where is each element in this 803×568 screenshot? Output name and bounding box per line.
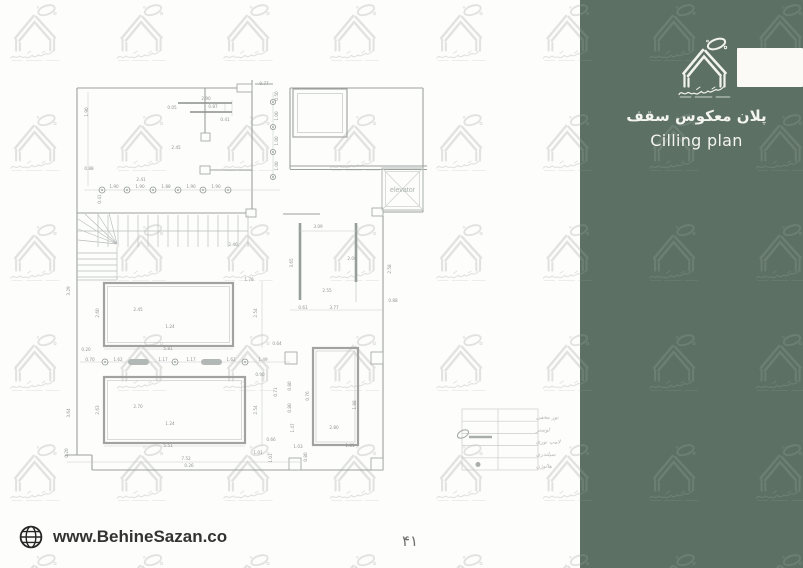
watermark-house-logo xyxy=(756,223,803,280)
dimension-label: 2.58 xyxy=(387,264,392,274)
dimension-label: 5.51 xyxy=(163,443,173,448)
dimension-label: 2.54 xyxy=(253,308,258,318)
dimension-label: 0.77 xyxy=(259,81,269,86)
dimension-label: 1.88 xyxy=(352,400,357,410)
dimension-label: 2.46 xyxy=(228,242,238,247)
watermark-house-logo xyxy=(580,553,592,568)
dimension-label: 1.62 xyxy=(113,357,123,362)
dimension-label: 1.49 xyxy=(258,357,268,362)
dimension-label: 1.47 xyxy=(290,423,295,433)
header-tab-marker xyxy=(737,48,803,87)
watermark-house-logo xyxy=(650,223,698,280)
dimension-label: 1.90 xyxy=(211,184,221,189)
legend-row-label: نور مخفی xyxy=(536,415,559,421)
watermark-house-logo xyxy=(580,333,592,390)
dimension-label: 0.88 xyxy=(388,298,398,303)
brand-house-logo-icon xyxy=(676,28,736,107)
watermark-house-logo xyxy=(580,3,592,60)
dimension-label: 1.01 xyxy=(268,453,273,463)
halogen-dot-icon xyxy=(476,462,481,467)
watermark-house-logo xyxy=(756,333,803,390)
dimension-label: 2.55 xyxy=(322,288,332,293)
dimension-label: 1.01 xyxy=(253,450,263,455)
dimension-label: 1.90 xyxy=(186,184,196,189)
dimension-label: 1.81 xyxy=(345,443,355,448)
dimension-label: 2.60 xyxy=(95,308,100,318)
ceiling-lights xyxy=(99,99,276,365)
dimension-label: 3.65 xyxy=(289,258,294,268)
legend-row-label: هالوژن xyxy=(536,463,552,470)
website-url[interactable]: www.BehineSazan.co xyxy=(53,527,227,547)
dimension-label: 0.90 xyxy=(255,372,265,377)
legend-row-label: لامپ نوری xyxy=(536,439,561,446)
ceiling-panel-bottom xyxy=(104,377,245,443)
dimension-label: 3.64 xyxy=(66,408,71,418)
legend-labels: نور مخفیلوسترلامپ نوریسیلندریهالوژن xyxy=(535,415,561,470)
legend-table: نور مخفیلوسترلامپ نوریسیلندریهالوژن xyxy=(456,409,561,470)
ceiling-panel-top xyxy=(104,283,233,346)
page-title-farsi: پلان معکوس سقف xyxy=(598,107,795,125)
dimension-label: 1.90 xyxy=(135,184,145,189)
dimension-label: 1.90 xyxy=(109,184,119,189)
dimension-label: 0.66 xyxy=(266,437,276,442)
legend-row-label: سیلندری xyxy=(536,451,556,458)
dimension-label: 0.41 xyxy=(220,117,230,122)
dimension-label: 1.24 xyxy=(165,324,175,329)
dimension-label: 7.52 xyxy=(181,456,191,461)
dimension-label: 2.90 xyxy=(201,96,211,101)
watermark-house-logo xyxy=(580,113,592,170)
dimension-label: 0.20 xyxy=(64,448,69,458)
dimension-label: 5.81 xyxy=(163,346,173,351)
dimension-label: 3.09 xyxy=(313,224,323,229)
dimension-label: 1.00 xyxy=(274,161,279,171)
elevator-label: elevator xyxy=(390,187,416,194)
dimension-label: 2.45 xyxy=(133,307,143,312)
dimension-label: 1.17 xyxy=(158,357,168,362)
dimension-label: 1.90 xyxy=(84,107,89,117)
dimension-label: 2.80 xyxy=(329,425,339,430)
dimension-label: 0.88 xyxy=(84,166,94,171)
dimension-label: 1.00 xyxy=(274,111,279,121)
page-number: ۴۱ xyxy=(393,532,427,550)
watermark-house-logo xyxy=(650,333,698,390)
dimension-label: 1.17 xyxy=(186,357,196,362)
dimension-label: 1.03 xyxy=(293,444,303,449)
dimension-label: 3.77 xyxy=(329,305,339,310)
dimension-label: 1.78 xyxy=(244,277,254,282)
dimension-labels: 1.900.770.501.001.001.002.900.050.870.41… xyxy=(64,81,398,468)
sidebar-panel: پلان معکوس سقف Cilling plan xyxy=(580,0,803,568)
dimension-label: 0.80 xyxy=(303,452,308,462)
dimension-label: 0.87 xyxy=(208,104,218,109)
page-title-english: Cilling plan xyxy=(598,131,795,150)
watermark-house-logo xyxy=(580,443,592,500)
document-page: elevator نور مخفیلوسترلامپ نوریسیلندریها… xyxy=(0,0,803,568)
dimension-label: 0.50 xyxy=(274,91,279,101)
watermark-house-logo xyxy=(756,443,803,500)
dimension-label: 2.08 xyxy=(347,256,357,261)
dimension-label: 0.80 xyxy=(287,403,292,413)
staircase xyxy=(77,213,248,280)
dimension-label: 0.41 xyxy=(97,194,102,204)
watermark-house-logo xyxy=(756,553,803,568)
dimension-label: 1.88 xyxy=(161,184,171,189)
dimension-label: 0.26 xyxy=(184,463,194,468)
dimension-label: 1.62 xyxy=(226,357,236,362)
dimension-label: 2.41 xyxy=(136,177,146,182)
dimension-label: 2.63 xyxy=(95,405,100,415)
dimension-label: 0.64 xyxy=(272,341,282,346)
globe-icon xyxy=(18,524,44,550)
dimension-label: 2.54 xyxy=(253,405,258,415)
dimension-label: 0.20 xyxy=(81,347,91,352)
ceiling-panel-right xyxy=(313,348,358,445)
legend-row-label: لوستر xyxy=(535,426,551,433)
footer: www.BehineSazan.co xyxy=(18,522,227,552)
wall-washer-light-icon xyxy=(456,428,492,440)
watermark-house-logo xyxy=(580,223,592,280)
dimension-label: 3.29 xyxy=(66,286,71,296)
dimension-label: 0.76 xyxy=(305,391,310,401)
watermark-house-logo xyxy=(650,443,698,500)
dimension-label: 1.00 xyxy=(274,136,279,146)
watermark-house-logo xyxy=(650,553,698,568)
elevator-shaft: elevator xyxy=(382,168,423,210)
dimension-label: 0.61 xyxy=(298,305,308,310)
dimension-label: 0.05 xyxy=(167,105,177,110)
dimension-label: 2.70 xyxy=(133,404,143,409)
dimension-label: 0.71 xyxy=(273,387,278,397)
dimension-label: 1.24 xyxy=(165,421,175,426)
dimension-label: 2.45 xyxy=(171,145,181,150)
dimension-label: 0.80 xyxy=(287,381,292,391)
dimension-label: 0.70 xyxy=(85,357,95,362)
